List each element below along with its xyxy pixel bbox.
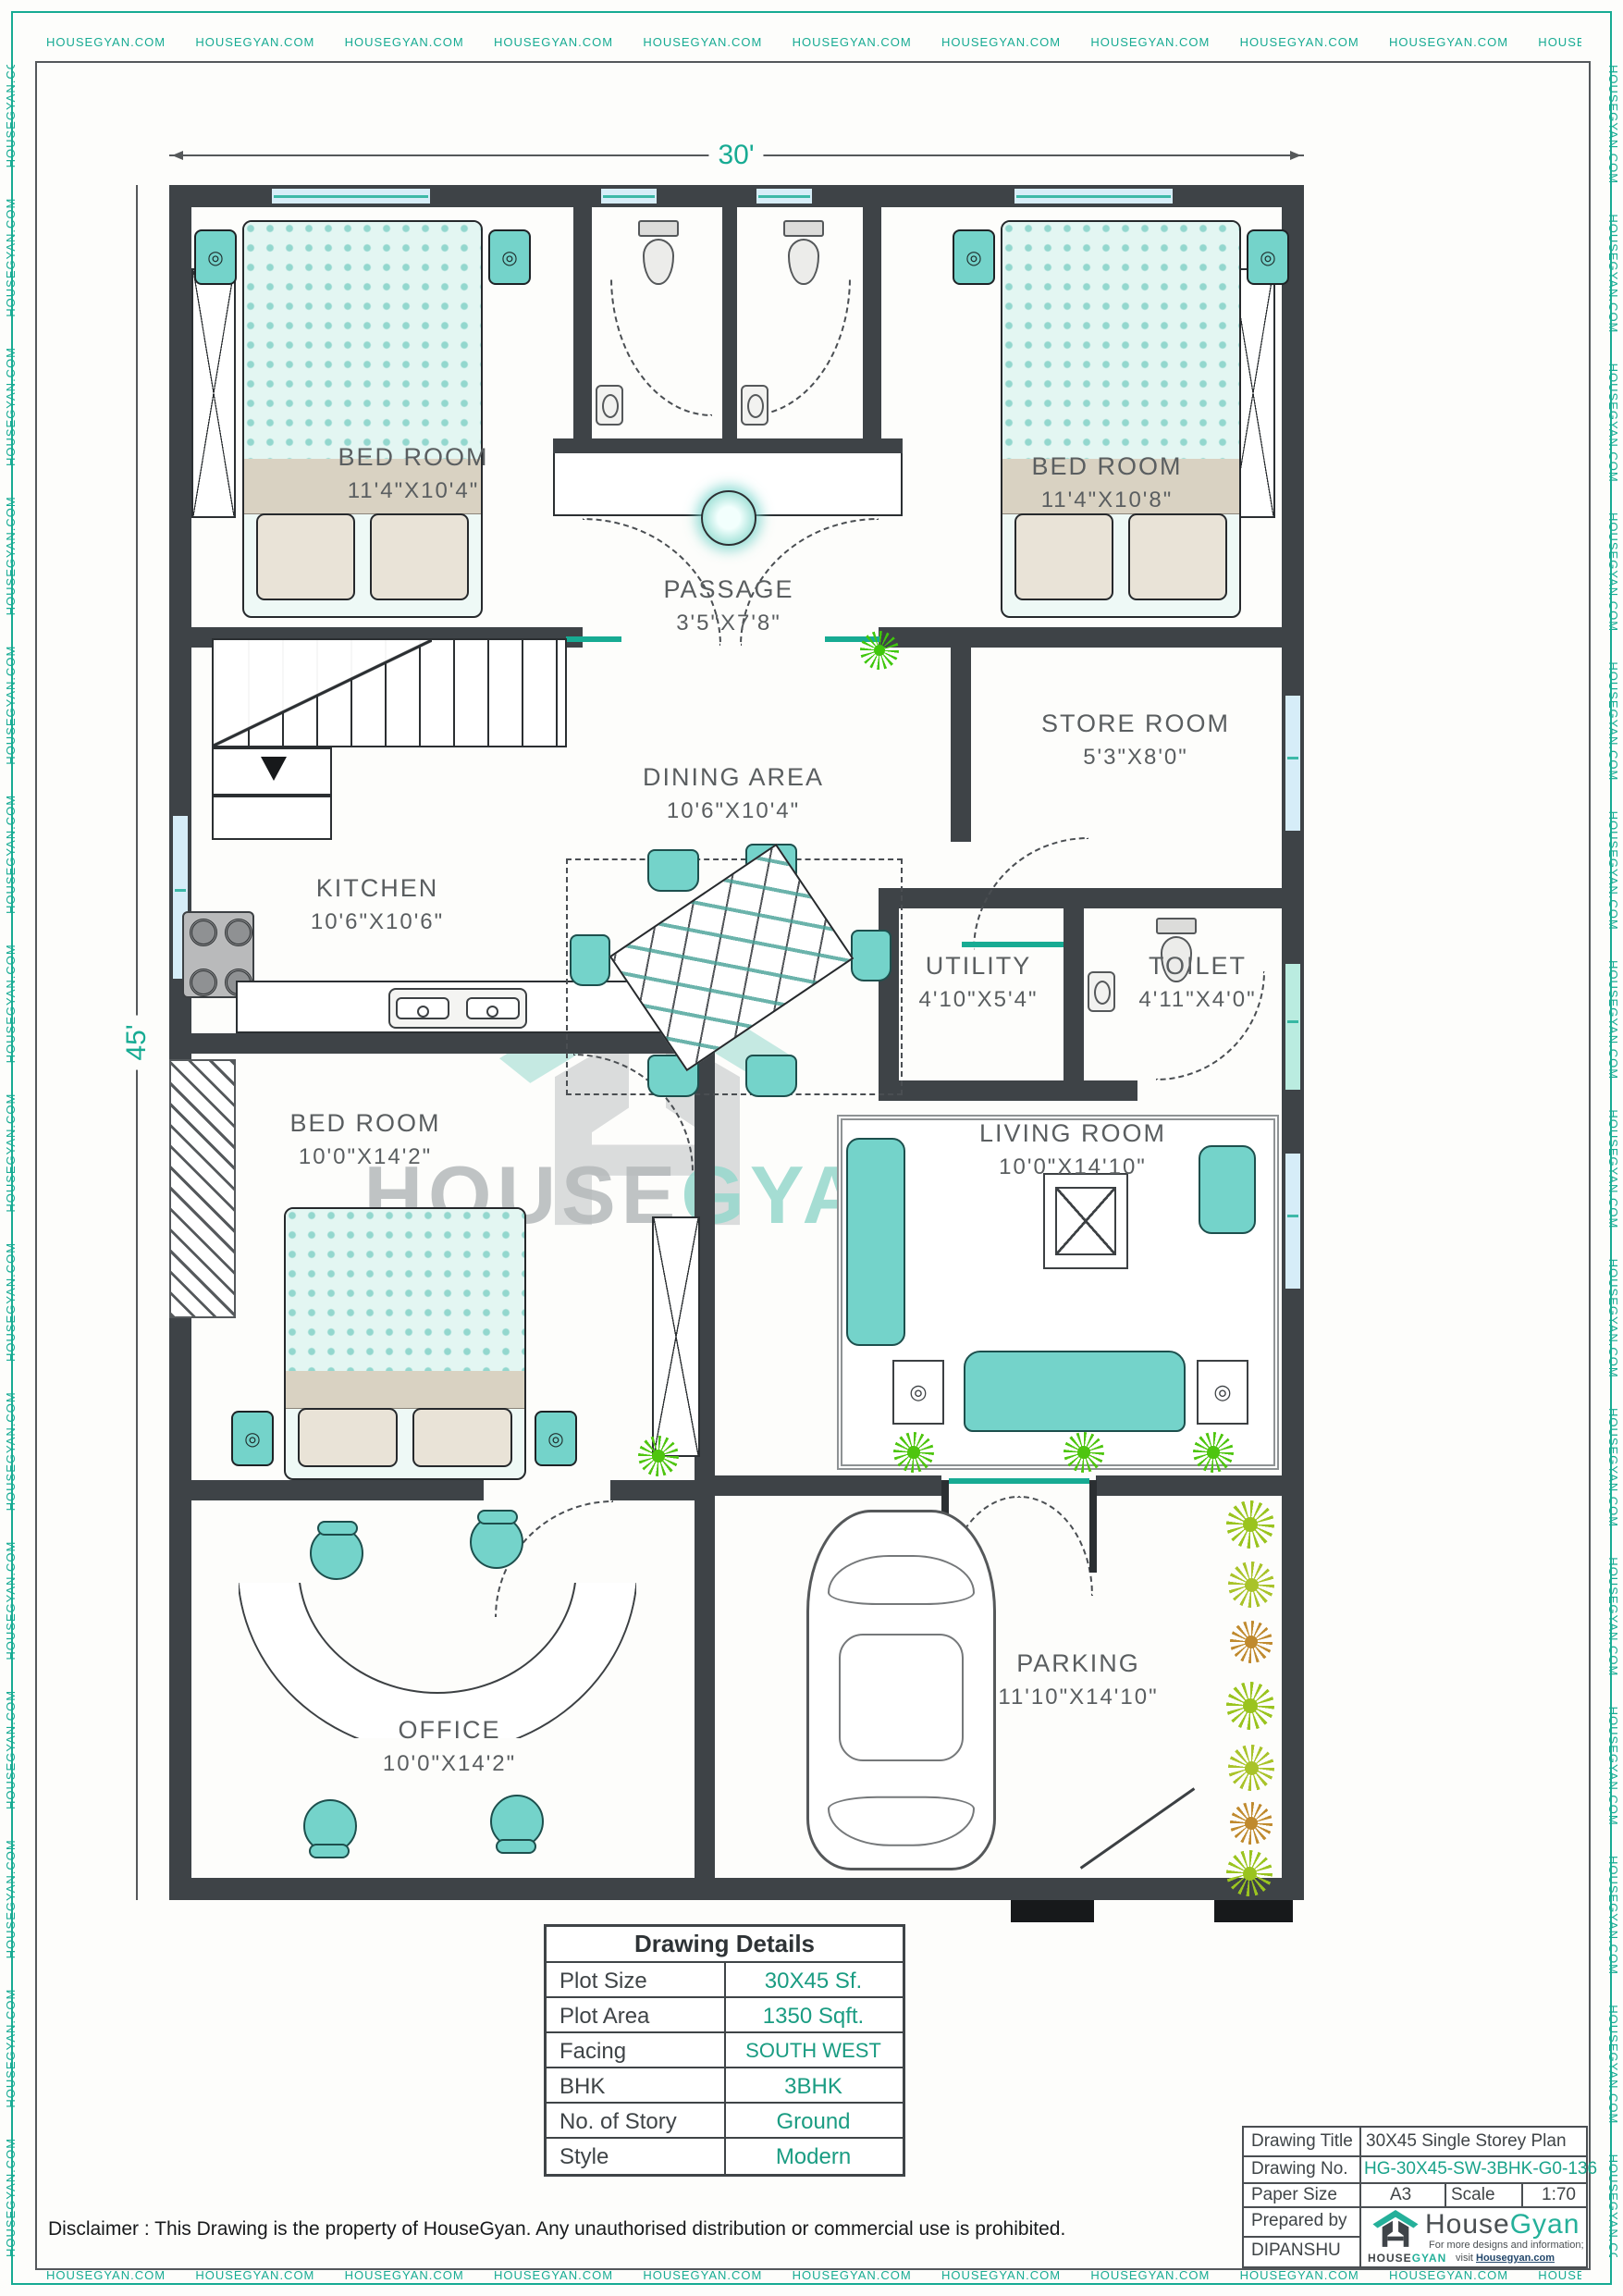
room-label-store-room: STORE ROOM5'3"X8'0" [1041,710,1230,771]
room-label-dining-area: DINING AREA10'6"X10'4" [643,763,824,824]
housegyan-link[interactable]: Housegyan.com [1476,2253,1555,2264]
bed1-quilt [244,222,481,461]
floor-plan-sheet: HOUSEGYAN.COM HOUSEGYAN.COM HOUSEGYAN.CO… [0,0,1623,2296]
titleblock-label-drawing-title: Drawing Title [1251,2131,1353,2152]
plant [1064,1432,1104,1473]
plant [1226,1682,1274,1730]
wall-exterior-bottom [169,1878,1304,1900]
plant [638,1436,679,1476]
plant [1226,1850,1273,1896]
brand-name: HouseGyan [1425,2209,1580,2240]
plant [1230,1621,1273,1663]
room-label-bedroom-2: BED ROOM11'4"X10'8" [1031,452,1182,513]
bed1-pillow-right [370,513,470,600]
entry-step-left [1011,1900,1094,1922]
details-label-facing: Facing [559,2039,722,2065]
room-label-passage: PASSAGE3'5"X7'8" [663,575,793,636]
details-label-story: No. of Story [559,2109,722,2135]
bed-bedroom1 [242,220,483,618]
window-store [1284,694,1302,833]
vanity-basin [701,490,756,546]
stair-direction-arrow [261,757,287,794]
wall-bedroom-office-left [169,1480,484,1500]
nightstand: ◎ [1247,229,1289,285]
dining-chair [851,930,891,981]
bed3-pillow-right [412,1408,512,1467]
nightstand: ◎ [953,229,995,285]
drawing-details-title: Drawing Details [547,1927,903,1961]
details-value-style: Modern [728,2144,899,2170]
toilet-wc-bath1 [636,220,681,289]
watermark-strip-top: HOUSEGYAN.COM HOUSEGYAN.COM HOUSEGYAN.CO… [46,35,1581,49]
watermark-strip-left: HOUSEGYAN.COM HOUSEGYAN.COM HOUSEGYAN.CO… [4,65,31,2257]
cupboard-bedroom1 [191,268,236,518]
bed1-pillow-left [256,513,356,600]
titleblock-value-drawing-no: HG-30X45-SW-3BHK-G0-136 [1364,2159,1597,2179]
window-bath1 [599,187,658,205]
dining-chair [570,934,610,986]
main-door-sill [949,1478,1089,1484]
bed-bedroom3 [284,1207,526,1480]
stair-landing-2 [212,796,332,840]
wall-living-parking-left [715,1475,941,1496]
titleblock-value-drawing-title: 30X45 Single Storey Plan [1366,2131,1567,2152]
details-value-plot-size: 30X45 Sf. [728,1969,899,1994]
toilet-wc-bath2 [781,220,826,289]
armchair [1199,1145,1256,1234]
bed3-sheet [286,1371,524,1410]
washbasin-toilet [1088,971,1115,1012]
staircase [212,638,567,747]
nightstand: ◎ [488,229,531,285]
details-label-style: Style [559,2144,722,2170]
housegyan-logo-icon [1371,2209,1420,2257]
dining-chair [647,849,699,892]
dining-chair [745,1055,797,1097]
disclaimer-text: Disclaimer : This Drawing is the propert… [48,2218,1065,2240]
wall-utility-bottom [879,1080,1137,1101]
bed2-pillow-right [1128,513,1228,600]
sofa-long [846,1138,905,1346]
titleblock-value-scale: 1:70 [1542,2185,1576,2205]
bed2-quilt [1002,222,1239,461]
plant [1226,1500,1274,1549]
titleblock-label-paper-size: Paper Size [1251,2185,1337,2205]
plant [1193,1432,1234,1473]
titleblock-label-drawing-no: Drawing No. [1251,2159,1348,2179]
plant [860,631,899,670]
details-label-bhk: BHK [559,2074,722,2100]
wardrobe-bedroom3 [652,1216,700,1457]
room-label-bedroom-1: BED ROOM11'4"X10'4" [338,443,488,504]
store-door-sill [962,942,1064,947]
bed2-pillow-left [1014,513,1114,600]
side-table: ◎ [1197,1360,1248,1425]
room-label-bedroom-3: BED ROOM10'0"X14'2" [289,1109,440,1170]
car [806,1510,996,1870]
titleblock-value-prepared-by: DIPANSHU [1251,2240,1341,2261]
window-living [1284,1152,1302,1290]
title-block: Drawing Title 30X45 Single Storey Plan D… [1242,2126,1588,2268]
bed-bedroom2 [1001,220,1241,618]
kitchen-sink [388,988,527,1029]
window-toilet [1284,962,1302,1092]
plant [1228,1562,1274,1608]
office-chair [490,1795,544,1848]
height-dimension-label: 45' [119,1015,154,1069]
details-value-facing: SOUTH WEST [728,2039,899,2063]
room-label-toilet: TOILET4'11"X4'0" [1138,952,1256,1013]
nightstand: ◎ [194,229,237,285]
watermark-strip-right: HOUSEGYAN.COM HOUSEGYAN.COM HOUSEGYAN.CO… [1592,65,1620,2257]
wall-bedroom-office-right [610,1480,715,1500]
washbasin-bath1 [596,385,623,426]
details-value-plot-area: 1350 Sqft. [728,2004,899,2030]
shaft-hatch [169,1059,236,1318]
window-bedroom1 [270,187,432,205]
titleblock-value-paper-size: A3 [1390,2185,1411,2205]
nightstand: ◎ [535,1411,577,1466]
sofa-main [964,1351,1186,1432]
office-chair [470,1515,523,1569]
wall-bath2-right [863,207,881,438]
bed3-pillow-left [298,1408,398,1467]
wall-store-left [951,648,971,842]
room-label-utility: UTILITY4'10"X5'4" [919,952,1039,1013]
details-label-plot-size: Plot Size [559,1969,722,1994]
room-label-office: OFFICE10'0"X14'2" [383,1716,516,1777]
plant [1228,1745,1274,1791]
office-chair [303,1799,357,1853]
titleblock-label-scale: Scale [1451,2185,1495,2205]
window-bedroom2 [1013,187,1174,205]
details-label-plot-area: Plot Area [559,2004,722,2030]
coffee-table [1043,1173,1128,1269]
washbasin-bath2 [741,385,768,426]
plant [893,1432,934,1473]
wall-bath1-left [573,207,592,438]
watermark-strip-bottom: HOUSEGYAN.COM HOUSEGYAN.COM HOUSEGYAN.CO… [46,2268,1581,2282]
width-dimension-label: 30' [708,138,763,173]
drawing-details-table: Drawing Details Plot Size 30X45 Sf. Plot… [544,1924,905,2177]
logo-caption: HOUSEGYAN [1368,2252,1446,2265]
nightstand: ◎ [231,1411,274,1466]
brand-tagline: For more designs and information; visit … [1429,2239,1581,2265]
room-label-living-room: LIVING ROOM10'0"X14'10" [979,1119,1166,1180]
main-door-leaf-right [1089,1480,1097,1573]
wall-living-parking-right [1096,1475,1282,1496]
passage-sill-left [566,636,621,642]
wall-mid-right [879,627,1282,648]
window-bath2 [755,187,814,205]
details-value-bhk: 3BHK [728,2074,899,2100]
side-table: ◎ [892,1360,944,1425]
titleblock-label-prepared-by: Prepared by [1251,2211,1347,2231]
room-label-parking: PARKING11'10"X14'10" [998,1649,1158,1710]
plant [1230,1802,1273,1845]
entry-step-right [1214,1900,1293,1922]
office-chair [310,1526,363,1580]
room-label-kitchen: KITCHEN10'6"X10'6" [311,874,444,935]
details-value-story: Ground [728,2109,899,2135]
bed3-quilt [286,1209,524,1373]
